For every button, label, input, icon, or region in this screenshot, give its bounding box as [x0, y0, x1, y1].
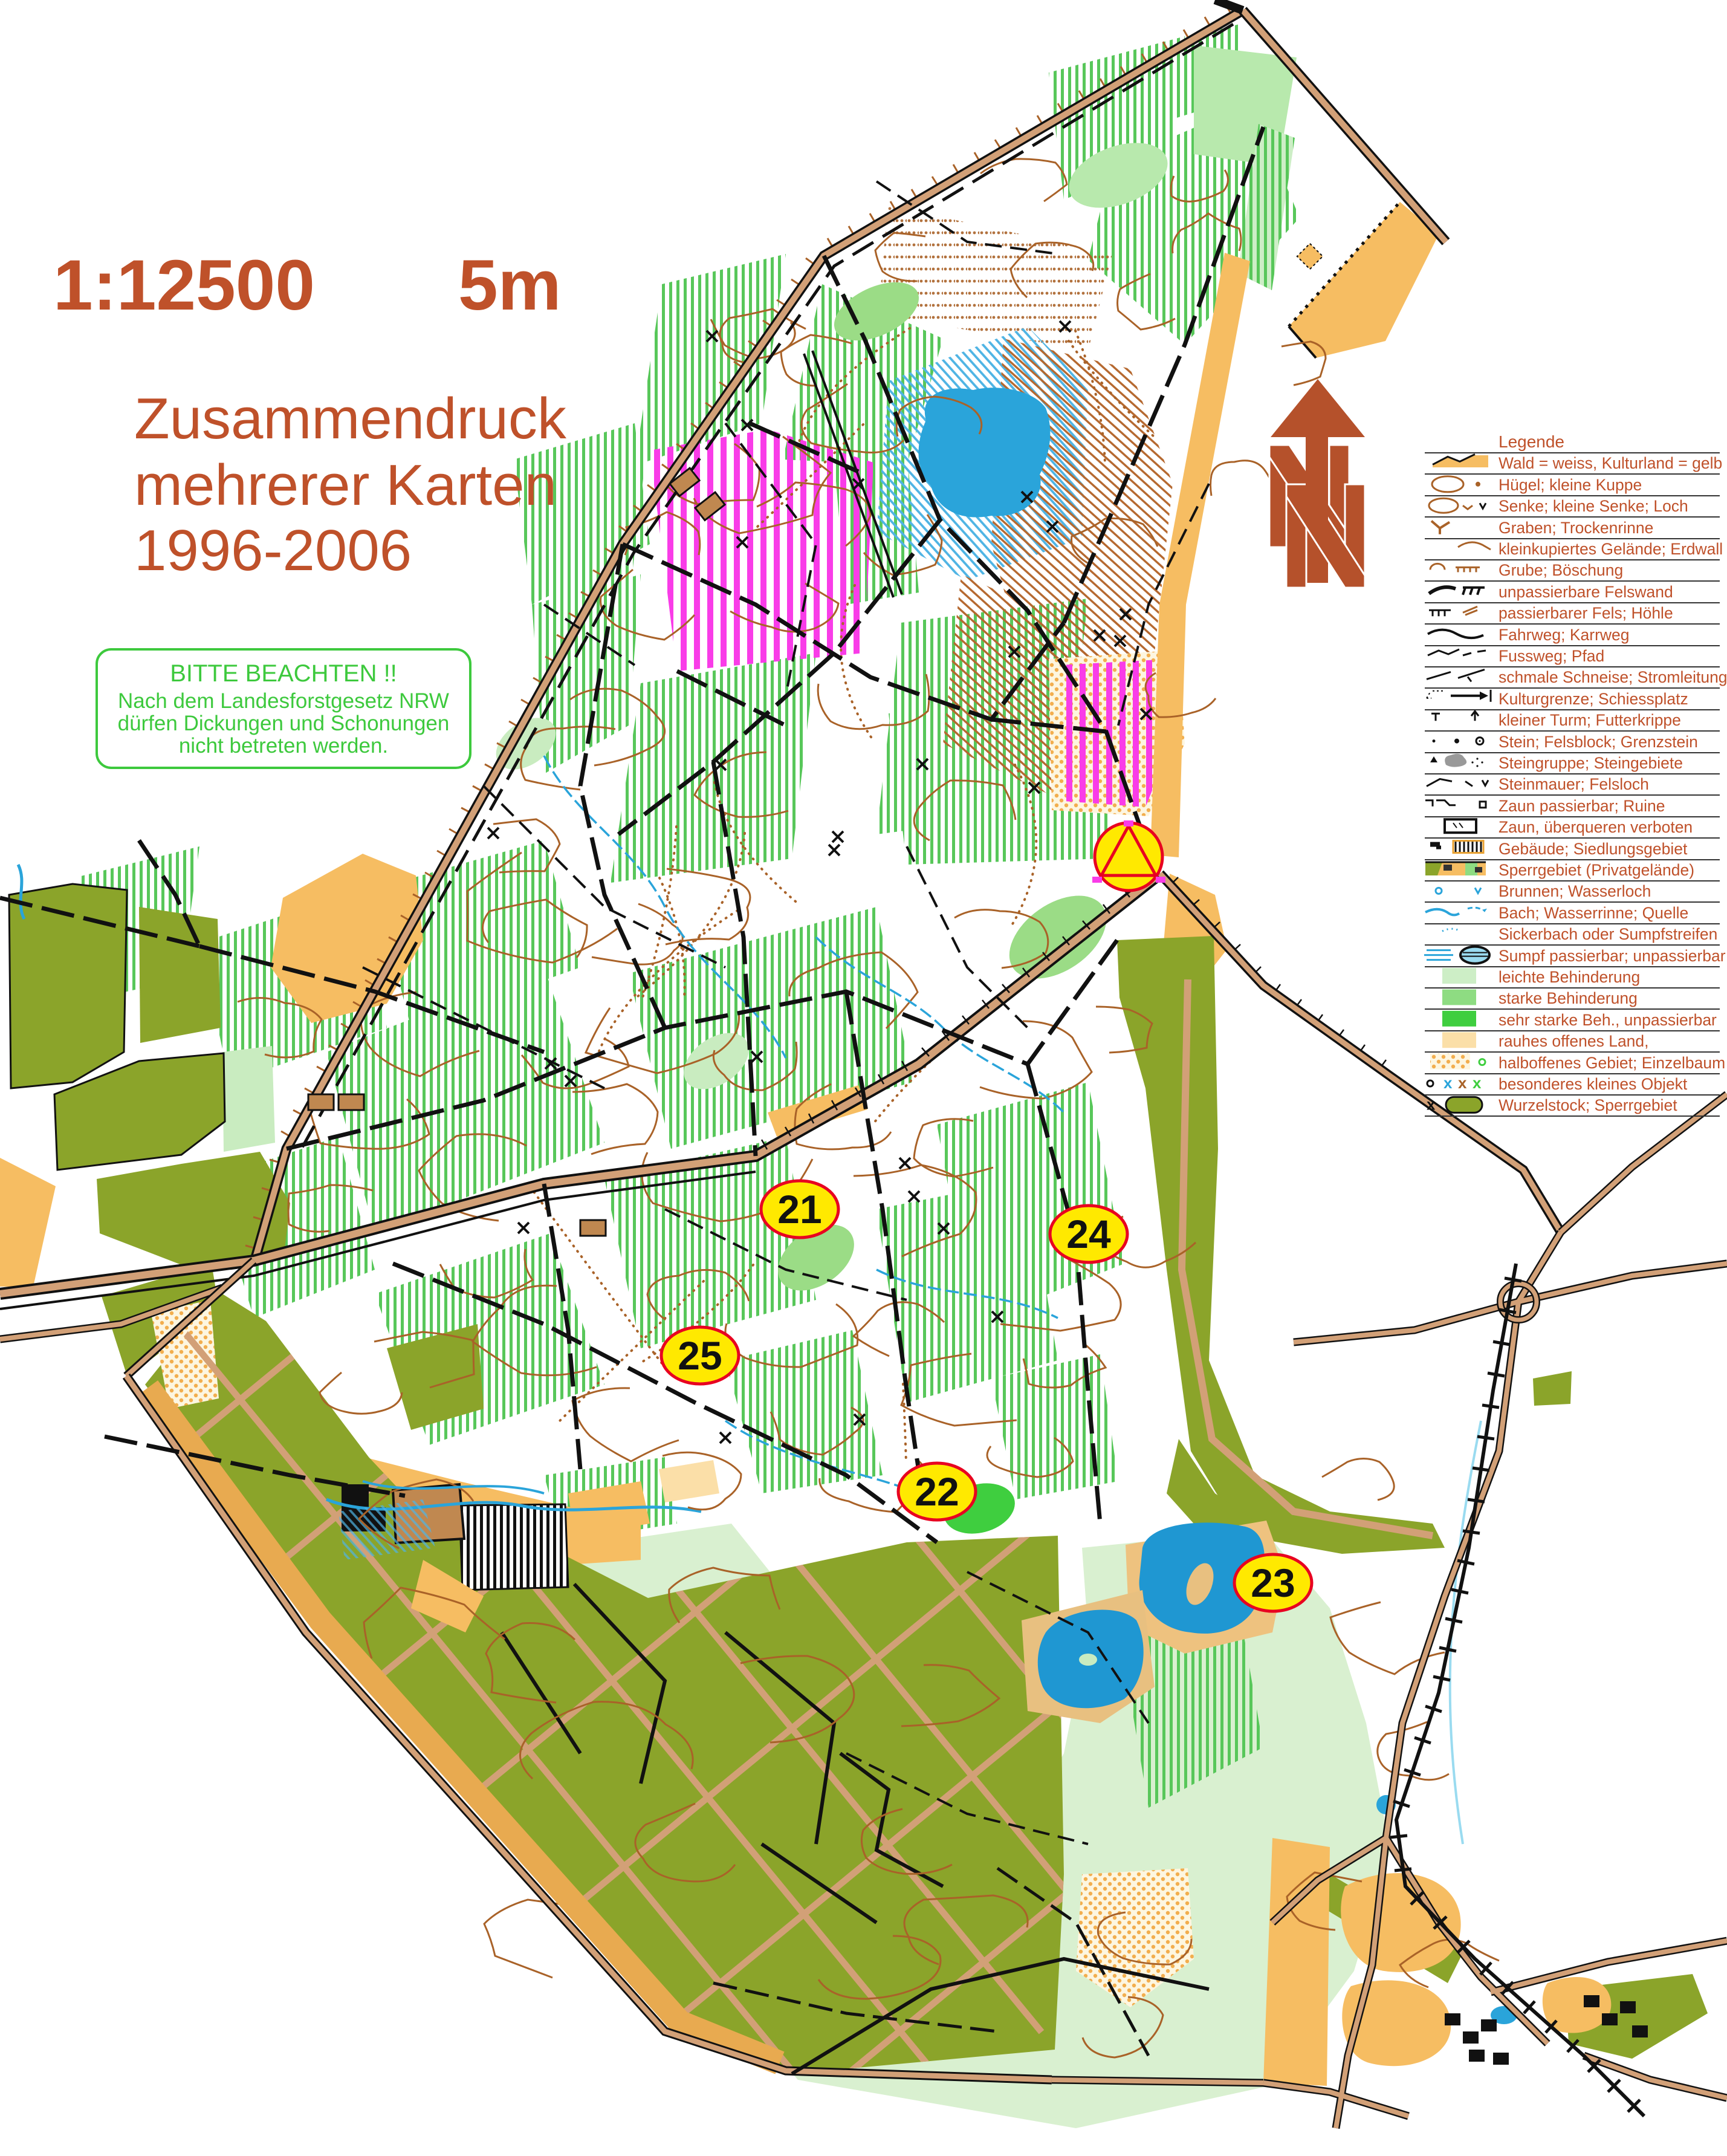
svg-text:Zaun, überqueren verboten: Zaun, überqueren verboten: [1499, 818, 1693, 836]
svg-text:Bach; Wasserrinne; Quelle: Bach; Wasserrinne; Quelle: [1499, 904, 1688, 922]
svg-text:Grube; Böschung: Grube; Böschung: [1499, 561, 1623, 579]
svg-text:sehr starke Beh., unpassierbar: sehr starke Beh., unpassierbar: [1499, 1011, 1717, 1029]
svg-text:x: x: [1427, 1095, 1436, 1113]
svg-text:Zaun passierbar; Ruine: Zaun passierbar; Ruine: [1499, 797, 1665, 815]
svg-text:21: 21: [777, 1187, 821, 1232]
svg-text:Zusammendruck: Zusammendruck: [134, 386, 567, 451]
svg-text:x: x: [1458, 1074, 1467, 1092]
svg-text:Fussweg; Pfad: Fussweg; Pfad: [1499, 647, 1604, 665]
svg-text:Brunnen; Wasserloch: Brunnen; Wasserloch: [1499, 882, 1651, 900]
svg-text:BITTE BEACHTEN !!: BITTE BEACHTEN !!: [170, 660, 397, 687]
svg-text:kleiner Turm; Futterkrippe: kleiner Turm; Futterkrippe: [1499, 711, 1681, 729]
svg-text:Graben; Trockenrinne: Graben; Trockenrinne: [1499, 519, 1653, 537]
svg-text:1:12500: 1:12500: [53, 245, 315, 325]
svg-text:Nach dem Landesforstgesetz NRW: Nach dem Landesforstgesetz NRW: [118, 689, 449, 713]
svg-text:Steinmauer; Felsloch: Steinmauer; Felsloch: [1499, 775, 1649, 793]
svg-text:Sumpf passierbar; unpassierbar: Sumpf passierbar; unpassierbar: [1499, 947, 1726, 965]
svg-text:Legende: Legende: [1499, 432, 1564, 451]
svg-text:Fahrweg; Karrweg: Fahrweg; Karrweg: [1499, 626, 1630, 644]
svg-text:Gebäude; Siedlungsgebiet: Gebäude; Siedlungsgebiet: [1499, 840, 1688, 858]
svg-text:dürfen Dickungen und Schonunge: dürfen Dickungen und Schonungen: [118, 712, 450, 735]
svg-text:halboffenes Gebiet; Einzelbaum: halboffenes Gebiet; Einzelbaum: [1499, 1054, 1725, 1072]
svg-text:leichte Behinderung: leichte Behinderung: [1499, 968, 1640, 986]
svg-text:nicht betreten werden.: nicht betreten werden.: [179, 734, 388, 758]
svg-text:x: x: [1443, 1074, 1453, 1092]
svg-text:1996-2006: 1996-2006: [134, 518, 412, 583]
svg-text:24: 24: [1066, 1212, 1111, 1256]
svg-text:Senke; kleine Senke; Loch: Senke; kleine Senke; Loch: [1499, 497, 1688, 515]
svg-text:Stein; Felsblock; Grenzstein: Stein; Felsblock; Grenzstein: [1499, 733, 1698, 751]
svg-text:passierbarer Fels; Höhle: passierbarer Fels; Höhle: [1499, 604, 1673, 622]
svg-text:mehrerer Karten: mehrerer Karten: [134, 453, 557, 518]
svg-text:x: x: [1473, 1074, 1482, 1092]
svg-text:besonderes kleines Objekt: besonderes kleines Objekt: [1499, 1075, 1688, 1093]
svg-text:Wald = weiss, Kulturland = gel: Wald = weiss, Kulturland = gelb: [1499, 454, 1722, 472]
svg-text:Sperrgebiet (Privatgelände): Sperrgebiet (Privatgelände): [1499, 861, 1694, 879]
svg-text:unpassierbare Felswand: unpassierbare Felswand: [1499, 583, 1673, 601]
svg-text:Kulturgrenze; Schiessplatz: Kulturgrenze; Schiessplatz: [1499, 690, 1688, 708]
svg-text:rauhes offenes Land,: rauhes offenes Land,: [1499, 1032, 1649, 1050]
svg-text:22: 22: [915, 1469, 959, 1514]
svg-text:25: 25: [678, 1333, 722, 1378]
svg-text:schmale Schneise; Stromleitung: schmale Schneise; Stromleitung: [1499, 668, 1727, 686]
svg-text:5m: 5m: [458, 245, 562, 325]
svg-text:Steingruppe; Steingebiete: Steingruppe; Steingebiete: [1499, 754, 1683, 772]
svg-text:Hügel; kleine Kuppe: Hügel; kleine Kuppe: [1499, 476, 1642, 494]
svg-text:Wurzelstock; Sperrgebiet: Wurzelstock; Sperrgebiet: [1499, 1096, 1677, 1114]
svg-text:Sickerbach oder Sumpfstreifen: Sickerbach oder Sumpfstreifen: [1499, 925, 1717, 943]
svg-text:kleinkupiertes Gelände; Erdwal: kleinkupiertes Gelände; Erdwall: [1499, 540, 1723, 558]
svg-text:23: 23: [1251, 1560, 1295, 1605]
svg-text:starke Behinderung: starke Behinderung: [1499, 989, 1638, 1007]
